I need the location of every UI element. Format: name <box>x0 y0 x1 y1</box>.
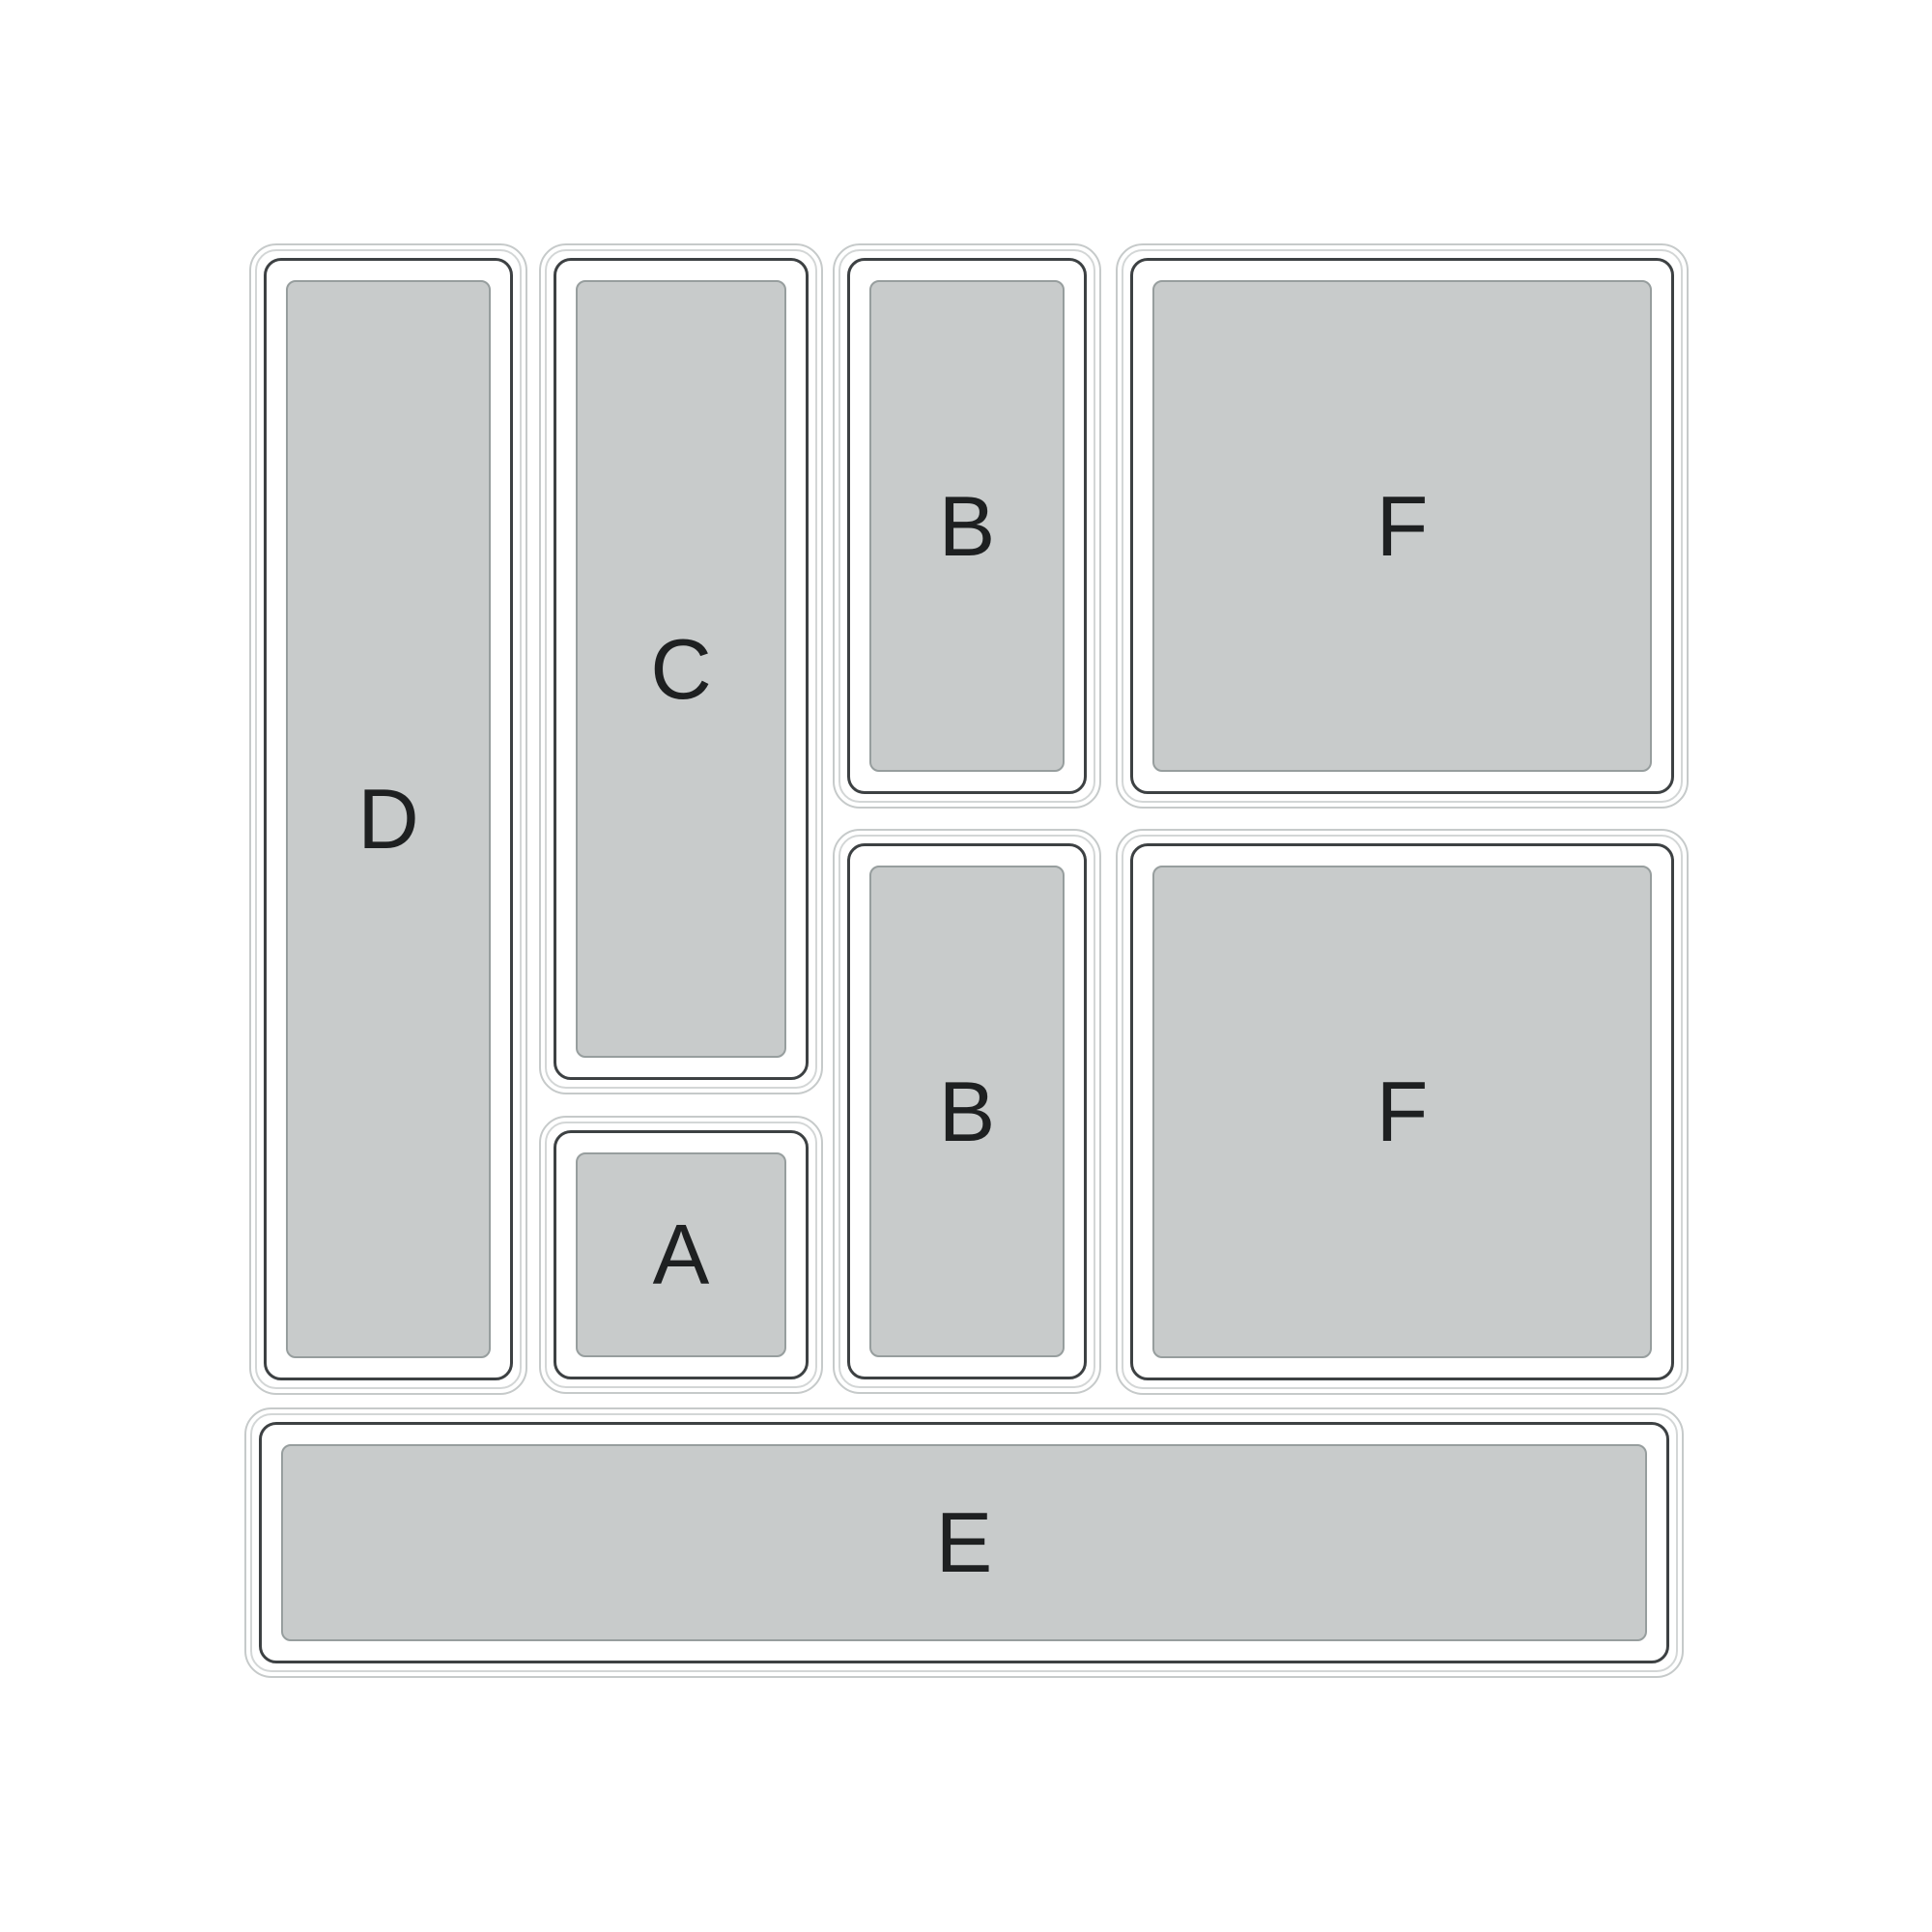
compartment-b-bottom-base: B <box>869 866 1065 1357</box>
compartment-b-top: B <box>833 243 1101 809</box>
compartment-f-top-base: F <box>1152 280 1652 772</box>
compartment-c-label: C <box>650 627 712 712</box>
compartment-b-top-label: B <box>939 484 996 569</box>
compartment-d-label: D <box>357 777 419 862</box>
compartment-f-bottom-label: F <box>1377 1069 1429 1154</box>
compartment-e: E <box>244 1407 1684 1678</box>
compartment-e-base: E <box>281 1444 1647 1641</box>
compartment-d-base: D <box>286 280 491 1358</box>
drawer-organizer-diagram: D C A B B F F <box>0 0 1932 1932</box>
compartment-f-bottom: F <box>1116 829 1689 1395</box>
compartment-b-bottom-label: B <box>939 1069 996 1154</box>
compartment-f-top-label: F <box>1377 484 1429 569</box>
compartment-c-base: C <box>576 280 786 1058</box>
compartment-f-top: F <box>1116 243 1689 809</box>
compartment-b-top-base: B <box>869 280 1065 772</box>
compartment-c: C <box>539 243 823 1094</box>
compartment-b-bottom: B <box>833 829 1101 1394</box>
compartment-e-label: E <box>936 1500 993 1585</box>
compartment-f-bottom-base: F <box>1152 866 1652 1358</box>
compartment-d: D <box>249 243 527 1395</box>
compartment-a-base: A <box>576 1152 786 1357</box>
compartment-a: A <box>539 1116 823 1394</box>
compartment-a-label: A <box>653 1212 710 1297</box>
